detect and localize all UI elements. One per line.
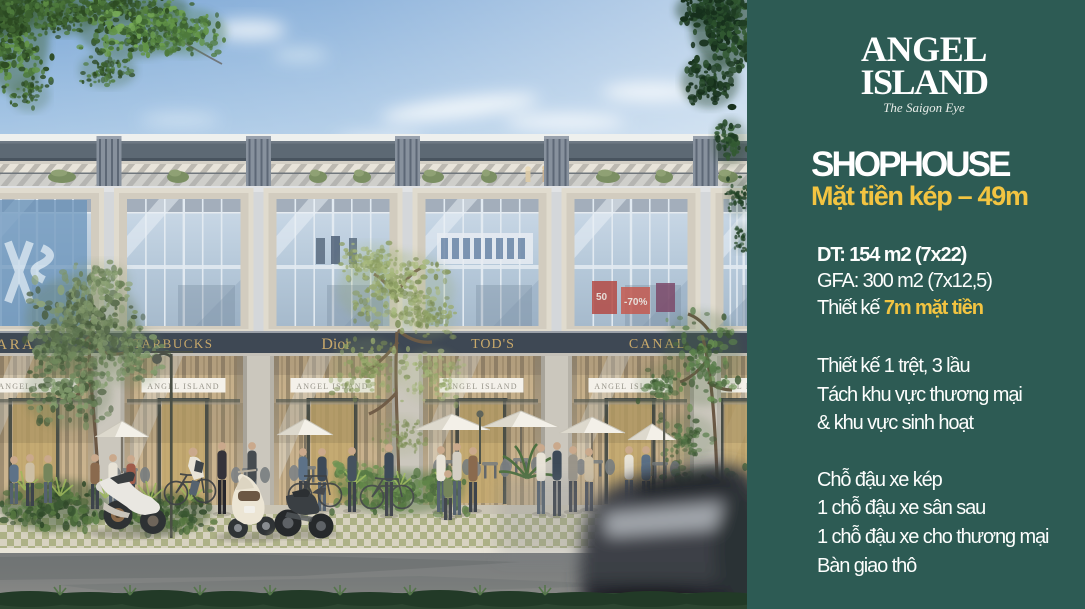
- svg-text:-70%: -70%: [624, 297, 647, 308]
- svg-text:50: 50: [596, 292, 608, 303]
- svg-text:TOD'S: TOD'S: [471, 337, 515, 352]
- svg-text:ANGEL ISLAND: ANGEL ISLAND: [147, 382, 220, 391]
